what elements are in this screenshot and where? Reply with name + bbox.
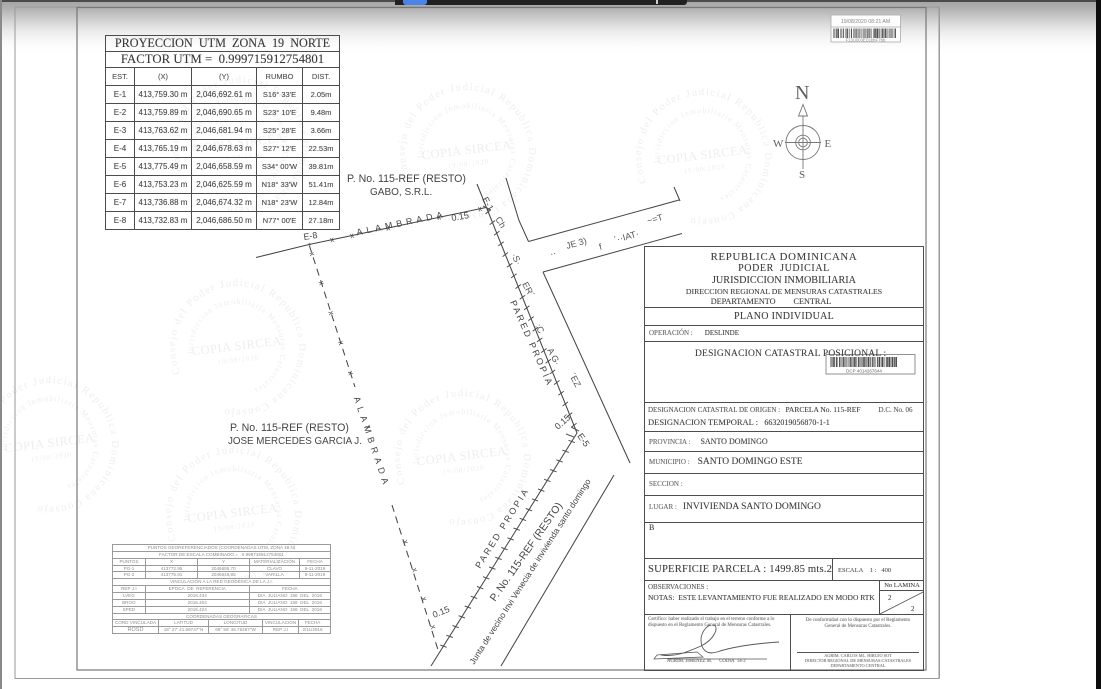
svg-text:JE 3): JE 3) <box>565 236 588 251</box>
svg-text:E-5: E-5 <box>575 431 591 448</box>
svg-text:2: 2 <box>911 605 915 613</box>
svg-text:N: N <box>795 82 809 104</box>
svg-text:´EZ: ´EZ <box>567 371 583 389</box>
svg-text:W: W <box>773 138 784 150</box>
svg-text:x: x <box>307 251 317 257</box>
svg-text:F13U003ED1bbF7bb: F13U003ED1bbF7bb <box>846 38 886 43</box>
svg-text:2: 2 <box>888 594 892 602</box>
svg-text::C: :C <box>533 322 546 335</box>
svg-text:P. No. 115-REF (RESTO): P. No. 115-REF (RESTO) <box>230 422 349 434</box>
svg-text:PARED PROPIA: PARED PROPIA <box>508 299 555 388</box>
svg-text:´··IAT·: ´··IAT· <box>613 229 640 245</box>
svg-text:19/08/2020 08:21 AM: 19/08/2020 08:21 AM <box>841 19 890 25</box>
svg-text:JOSE MERCEDES GARCIA J.: JOSE MERCEDES GARCIA J. <box>228 436 362 447</box>
svg-text:P. No. 115-REF (RESTO): P. No. 115-REF (RESTO) <box>488 500 565 603</box>
svg-text:ALAMBRADA: ALAMBRADA <box>356 209 448 237</box>
svg-text:x: x <box>410 567 420 573</box>
svg-text:0.15: 0.15 <box>431 604 451 620</box>
svg-text:Ch: Ch <box>493 215 508 230</box>
svg-text:ER´: ER´ <box>520 280 536 298</box>
svg-text:P. No. 115-REF (RESTO): P. No. 115-REF (RESTO) <box>347 173 466 185</box>
svg-text:x: x <box>477 204 483 214</box>
svg-text:x: x <box>317 280 327 286</box>
svg-text:x: x <box>336 340 346 346</box>
svg-text:A G·: A G· <box>545 346 562 367</box>
svg-text:··: ·· <box>549 248 557 259</box>
svg-text:x: x <box>401 539 411 545</box>
svg-text:~=T: ~=T <box>646 212 665 226</box>
svg-text:GABO, S.R.L.: GABO, S.R.L. <box>370 187 432 198</box>
svg-text:E-8: E-8 <box>303 230 318 242</box>
svg-text:f: f <box>598 241 604 251</box>
svg-text:x: x <box>329 235 335 245</box>
svg-text:S: S <box>799 169 805 181</box>
svg-text:x: x <box>349 231 355 241</box>
svg-text:Junta de vecino Invi Venecia d: Junta de vecino Invi Venecia de invivien… <box>467 477 593 666</box>
svg-text:E: E <box>825 138 832 150</box>
